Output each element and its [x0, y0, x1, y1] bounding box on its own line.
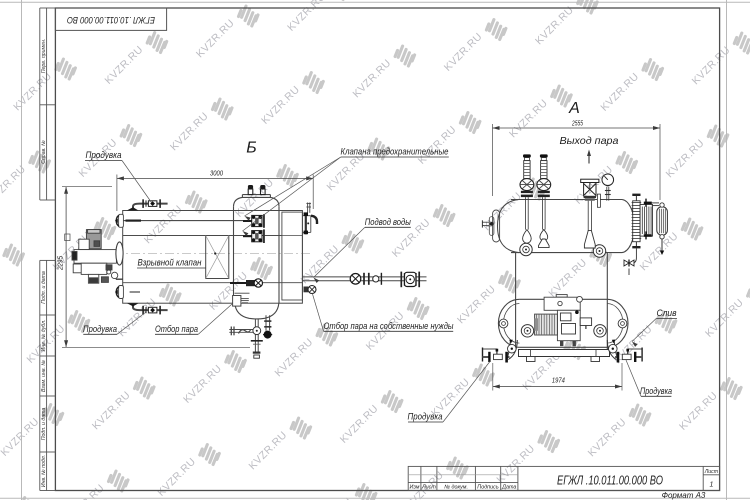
svg-text:Взам. инв. №: Взам. инв. № [41, 360, 47, 392]
svg-text:Отбор пара на собственные нужд: Отбор пара на собственные нужды [324, 321, 454, 331]
svg-text:2555: 2555 [571, 121, 583, 128]
svg-text:ЕГЖЛ .10.011.00.000 ВО: ЕГЖЛ .10.011.00.000 ВО [557, 472, 663, 487]
svg-text:3000: 3000 [210, 171, 223, 178]
svg-text:Б: Б [246, 140, 256, 157]
svg-text:Продувка: Продувка [86, 150, 122, 160]
svg-text:Подпись: Подпись [477, 485, 499, 491]
svg-text:Подп. и дата: Подп. и дата [41, 408, 47, 441]
svg-text:Лист: Лист [704, 469, 719, 475]
svg-text:1: 1 [709, 482, 713, 489]
svg-text:Выход пара: Выход пара [560, 135, 619, 147]
svg-text:Подп. и дата: Подп. и дата [41, 271, 47, 304]
svg-text:Клапана предохранительные: Клапана предохранительные [341, 147, 449, 157]
svg-text:Продувка: Продувка [83, 324, 117, 334]
svg-text:Продувка: Продувка [640, 386, 672, 396]
svg-text:А: А [568, 100, 580, 117]
svg-text:Формат А3: Формат А3 [662, 491, 706, 500]
svg-text:Подвод воды: Подвод воды [365, 217, 411, 227]
svg-text:№ докум.: № докум. [444, 485, 468, 491]
svg-text:Перв. примен.: Перв. примен. [41, 39, 47, 73]
svg-text:2295: 2295 [58, 256, 65, 271]
svg-text:ЕГЖЛ .10.011.00.000 ВО: ЕГЖЛ .10.011.00.000 ВО [67, 14, 155, 25]
svg-text:Инв. № дубл.: Инв. № дубл. [41, 320, 47, 352]
svg-text:Дата: Дата [501, 485, 516, 491]
svg-text:Лист: Лист [421, 485, 436, 491]
svg-text:Взрывной клапан: Взрывной клапан [138, 258, 202, 268]
svg-text:Инв. № подл.: Инв. № подл. [41, 455, 47, 487]
svg-text:Справ. №: Справ. № [41, 140, 47, 164]
svg-text:Отбор пара: Отбор пара [155, 324, 198, 334]
svg-text:1974: 1974 [552, 378, 565, 385]
svg-text:Продувка: Продувка [408, 412, 443, 422]
svg-text:Слив: Слив [657, 308, 677, 318]
svg-text:Изм: Изм [410, 485, 420, 491]
